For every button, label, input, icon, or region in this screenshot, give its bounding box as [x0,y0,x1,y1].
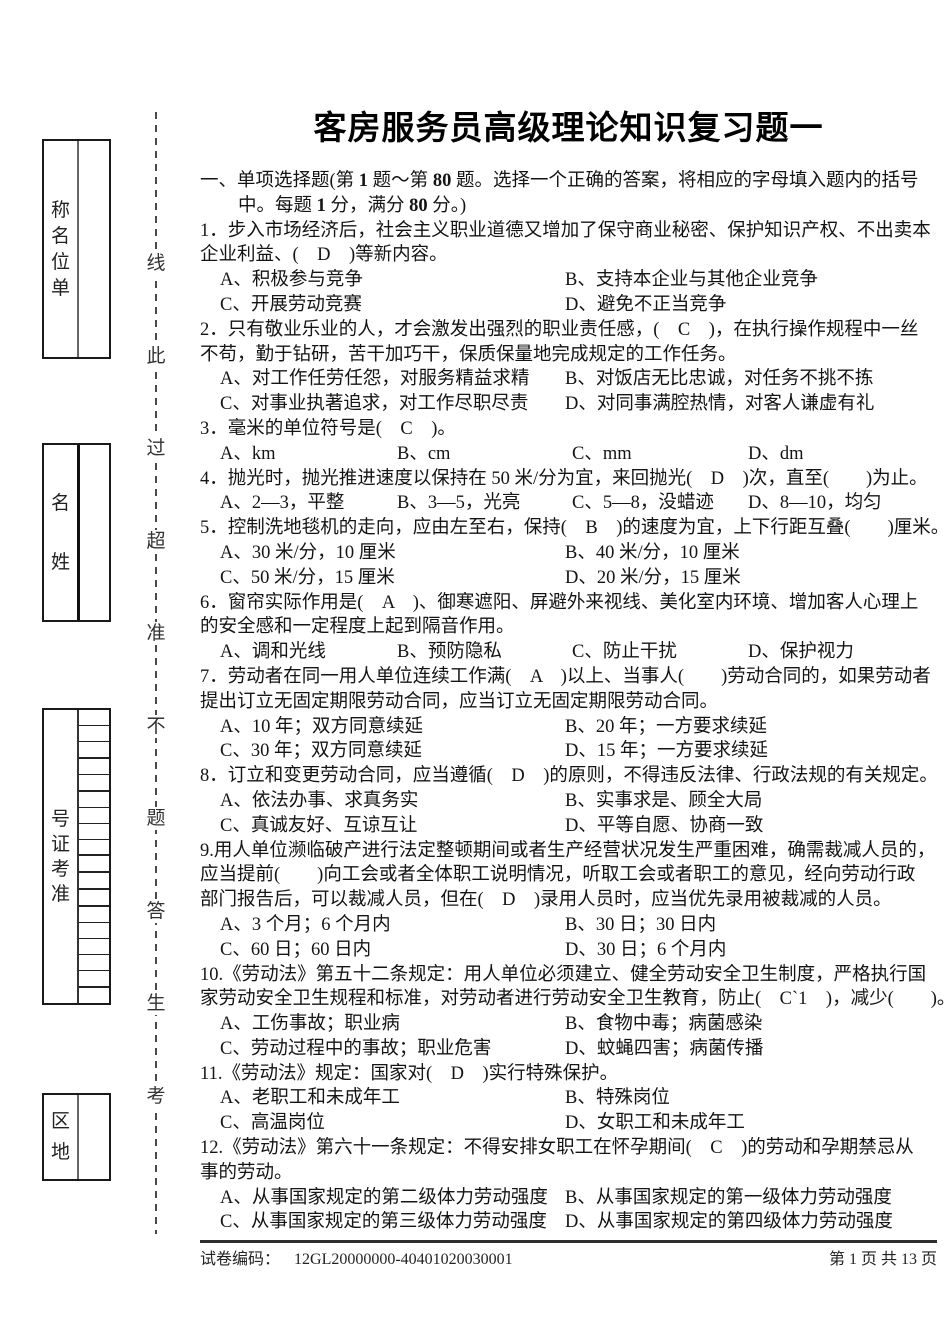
cut-line-char: 准 [146,622,166,645]
option: B、从事国家规定的第一级体力劳动强度 [565,1186,937,1211]
option: B、对饭店无比忠诚，对任务不挑不拣 [565,367,937,392]
option: A、调和光线 [220,640,397,665]
exam-number-cell [79,840,109,857]
option: D、15 年；一方要求续延 [565,739,937,764]
option: C、60 日；60 日内 [220,938,565,963]
option: C、对事业执著追求，对工作尽职尽责 [220,392,565,417]
exam-number-cell [79,824,109,840]
exam-number-cell [79,742,109,759]
option: D、8—10，均匀 [748,491,937,516]
question-stem-line: 4．抛光时，抛光推进速度以保持在 50 米/分为宜，来回抛光( D )次，直至(… [200,467,937,492]
cut-line: 线此过超准不题答生考 [146,112,166,1234]
cut-line-char: 题 [146,807,166,830]
option: B、支持本企业与其他企业竞争 [565,268,937,293]
page-title: 客房服务员高级理论知识复习题一 [200,104,937,152]
district-box: 区地 [42,1093,111,1181]
question: 9.用人单位濒临破产进行法定整顿期间或者生产经营状况发生严重困难，确需裁减人员的… [200,839,937,963]
question-stem-line: 3．毫米的单位符号是( C )。 [200,417,937,442]
paper-code-label: 试卷编码： [200,1251,280,1268]
footer-divider [200,1240,937,1243]
question-stem-line: 5．控制洗地毯机的走向，应由左至右，保持( B )的速度为宜，上下行距互叠( )… [200,516,937,541]
option: D、dm [748,442,937,467]
options-grid: A、依法办事、求真务实B、实事求是、顾全大局C、真诚友好、互谅互让D、平等自愿、… [200,789,937,839]
option: D、30 日；6 个月内 [565,938,937,963]
options-grid: A、从事国家规定的第二级体力劳动强度B、从事国家规定的第一级体力劳动强度C、从事… [200,1186,937,1236]
vertical-label-char: 名 [51,494,70,513]
section-header-line2: 中。每题 1 分，满分 80 分。) [200,194,937,219]
exam-number-cell [79,726,109,742]
vertical-label-char: 地 [51,1143,70,1162]
question-stem-line: 12.《劳动法》第六十一条规定：不得安排女职工在怀孕期间( C )的劳动和孕期禁… [200,1136,937,1161]
option: A、工伤事故；职业病 [220,1012,565,1037]
option: D、避免不正当竞争 [565,293,937,318]
cut-line-char: 线 [146,252,166,275]
question: 4．抛光时，抛光推进速度以保持在 50 米/分为宜，来回抛光( D )次，直至(… [200,467,937,517]
option: C、从事国家规定的第三级体力劳动强度 [220,1210,565,1235]
cut-line-dashes [155,112,157,1234]
question-stem-line: 应当提前( )向工会或者全体职工说明情况，听取工会或者职工的意见，经向劳动行政 [200,863,937,888]
option: A、2—3，平整 [220,491,397,516]
option: C、高温岗位 [220,1111,565,1136]
exam-number-cell [79,759,109,775]
question-stem-line: 8．订立和变更劳动合同，应当遵循( D )的原则，不得违反法律、行政法规的有关规… [200,764,937,789]
option: B、cm [397,442,572,467]
vertical-label-char: 考 [51,860,70,879]
cut-line-char: 此 [146,345,166,368]
question-stem-line: 企业利益、( D )等新内容。 [200,243,937,268]
exam-number-cell [79,988,109,1003]
question-stem-line: 的安全感和一定程度上起到隔音作用。 [200,615,937,640]
question: 12.《劳动法》第六十一条规定：不得安排女职工在怀孕期间( C )的劳动和孕期禁… [200,1136,937,1235]
exam-number-cell [79,955,109,971]
question-stem-line: 事的劳动。 [200,1161,937,1186]
question-stem-line: 不苟，勤于钻研，苦干加巧干，保质保量地完成规定的工作任务。 [200,343,937,368]
vertical-label-char: 称 [51,201,70,220]
cut-line-char: 不 [146,715,166,738]
option: C、30 年；双方同意续延 [220,739,565,764]
vertical-label-char: 区 [51,1112,70,1131]
question-list: 1．步入市场经济后，社会主义职业道德又增加了保守商业秘密、保护知识产权、不出卖本… [200,219,937,1236]
option: D、对同事满腔热情，对客人谦虚有礼 [565,392,937,417]
page-footer: 试卷编码：12GL20000000-40401020030001 第 1 页 共… [200,1248,937,1272]
question: 1．步入市场经济后，社会主义职业道德又增加了保守商业秘密、保护知识产权、不出卖本… [200,219,937,318]
option: D、从事国家规定的第四级体力劳动强度 [565,1210,937,1235]
question: 6．窗帘实际作用是( A )、御寒遮阳、屏避外来视线、美化室内环境、增加客人心理… [200,591,937,665]
option: B、20 年；一方要求续延 [565,715,937,740]
question-stem-line: 11.《劳动法》规定：国家对( D )实行特殊保护。 [200,1062,937,1087]
question-stem-line: 10.《劳动法》第五十二条规定：用人单位必须建立、健全劳动安全卫生制度，严格执行… [200,963,937,988]
exam-number-box: 号证考准 [42,708,111,1005]
option: C、5—8，没蜡迹 [572,491,748,516]
question-stem-line: 7．劳动者在同一用人单位连续工作满( A )以上、当事人( )劳动合同的，如果劳… [200,665,937,690]
option: B、实事求是、顾全大局 [565,789,937,814]
question-stem-line: 6．窗帘实际作用是( A )、御寒遮阳、屏避外来视线、美化室内环境、增加客人心理… [200,591,937,616]
vertical-label-char: 单 [51,279,70,298]
option: B、30 日；30 日内 [565,913,937,938]
question-stem-line: 2．只有敬业乐业的人，才会激发出强烈的职业责任感，( C )，在执行操作规程中一… [200,318,937,343]
question: 8．订立和变更劳动合同，应当遵循( D )的原则，不得违反法律、行政法规的有关规… [200,764,937,838]
option: A、依法办事、求真务实 [220,789,565,814]
option: B、食物中毒；病菌感染 [565,1012,937,1037]
exam-number-grid [77,710,109,1003]
option: D、20 米/分，15 厘米 [565,566,937,591]
question: 7．劳动者在同一用人单位连续工作满( A )以上、当事人( )劳动合同的，如果劳… [200,665,937,764]
options-grid: A、3 个月；6 个月内B、30 日；30 日内C、60 日；60 日内D、30… [200,913,937,963]
option: A、3 个月；6 个月内 [220,913,565,938]
district-field [77,1095,109,1179]
option: D、女职工和未成年工 [565,1111,937,1136]
exam-number-cell [79,808,109,824]
option: A、30 米/分，10 厘米 [220,541,565,566]
option: A、积极参与竞争 [220,268,565,293]
option: C、防止干扰 [572,640,748,665]
option: A、老职工和未成年工 [220,1086,565,1111]
exam-number-cell [79,792,109,808]
option: C、劳动过程中的事故；职业危害 [220,1037,565,1062]
question: 2．只有敬业乐业的人，才会激发出强烈的职业责任感，( C )，在执行操作规程中一… [200,318,937,417]
exam-number-cell [79,890,109,907]
question: 10.《劳动法》第五十二条规定：用人单位必须建立、健全劳动安全卫生制度，严格执行… [200,963,937,1062]
name-field [77,445,109,620]
vertical-label-char: 准 [51,885,70,904]
exam-number-cell [79,775,109,792]
question: 5．控制洗地毯机的走向，应由左至右，保持( B )的速度为宜，上下行距互叠( )… [200,516,937,590]
question-stem-line: 家劳动安全卫生规程和标准，对劳动者进行劳动安全卫生教育，防止( C`1 )，减少… [200,987,937,1012]
option: B、40 米/分，10 厘米 [565,541,937,566]
options-grid: A、kmB、cmC、mmD、dm [200,442,937,467]
option: D、保护视力 [748,640,937,665]
page-indicator: 第 1 页 共 13 页 [829,1248,937,1272]
options-grid: A、调和光线B、预防隐私C、防止干扰D、保护视力 [200,640,937,665]
option: B、预防隐私 [397,640,572,665]
options-grid: A、老职工和未成年工B、特殊岗位C、高温岗位D、女职工和未成年工 [200,1086,937,1136]
exam-number-cell [79,856,109,873]
unit-name-field [77,141,109,357]
option: D、平等自愿、协商一致 [565,814,937,839]
district-label: 区地 [44,1095,77,1179]
cut-line-char: 超 [146,530,166,553]
question: 11.《劳动法》规定：国家对( D )实行特殊保护。A、老职工和未成年工B、特殊… [200,1062,937,1136]
name-box: 名姓 [42,443,111,622]
exam-paper: 客房服务员高级理论知识复习题一 一、单项选择题(第 1 题～第 80 题。选择一… [200,104,937,1235]
option: A、对工作任劳任怨，对服务精益求精 [220,367,565,392]
exam-number-label: 号证考准 [44,710,77,1003]
option: C、开展劳动竞赛 [220,293,565,318]
options-grid: A、30 米/分，10 厘米B、40 米/分，10 厘米C、50 米/分，15 … [200,541,937,591]
unit-name-label: 称名位单 [44,141,77,357]
option: B、3—5，光亮 [397,491,572,516]
options-grid: A、积极参与竞争B、支持本企业与其他企业竞争C、开展劳动竞赛D、避免不正当竞争 [200,268,937,318]
options-grid: A、10 年；双方同意续延B、20 年；一方要求续延C、30 年；双方同意续延D… [200,715,937,765]
exam-number-cell [79,923,109,939]
cut-line-char: 答 [146,900,166,923]
question-stem-line: 1．步入市场经济后，社会主义职业道德又增加了保守商业秘密、保护知识产权、不出卖本 [200,219,937,244]
cut-line-char: 考 [146,1085,166,1108]
exam-number-cell [79,907,109,923]
question-stem-line: 9.用人单位濒临破产进行法定整顿期间或者生产经营状况发生严重困难，确需裁减人员的… [200,839,937,864]
section-header-line1: 一、单项选择题(第 1 题～第 80 题。选择一个正确的答案，将相应的字母填入题… [200,169,937,194]
exam-number-cell [79,971,109,988]
option: A、从事国家规定的第二级体力劳动强度 [220,1186,565,1211]
options-grid: A、对工作任劳任怨，对服务精益求精B、对饭店无比忠诚，对任务不挑不拣C、对事业执… [200,367,937,417]
option: C、50 米/分，15 厘米 [220,566,565,591]
paper-code-value: 12GL20000000-40401020030001 [294,1251,513,1268]
vertical-label-char: 证 [51,835,70,854]
exam-number-cell [79,873,109,890]
option: D、蚊蝇四害；病菌传播 [565,1037,937,1062]
exam-number-cell [79,939,109,955]
exam-number-cell [79,710,109,726]
option: C、mm [572,442,748,467]
question-stem-line: 提出订立无固定期限劳动合同，应当订立无固定期限劳动合同。 [200,690,937,715]
question: 3．毫米的单位符号是( C )。A、kmB、cmC、mmD、dm [200,417,937,467]
options-grid: A、2—3，平整B、3—5，光亮C、5—8，没蜡迹D、8—10，均匀 [200,491,937,516]
name-label: 名姓 [44,445,77,620]
option: C、真诚友好、互谅互让 [220,814,565,839]
cut-line-char: 过 [146,437,166,460]
option: B、特殊岗位 [565,1086,937,1111]
option: A、10 年；双方同意续延 [220,715,565,740]
options-grid: A、工伤事故；职业病B、食物中毒；病菌感染C、劳动过程中的事故；职业危害D、蚊蝇… [200,1012,937,1062]
question-stem-line: 部门报告后，可以裁减人员，但在( D )录用人员时，应当优先录用被裁减的人员。 [200,888,937,913]
vertical-label-char: 号 [51,810,70,829]
paper-code: 试卷编码：12GL20000000-40401020030001 [200,1248,513,1272]
vertical-label-char: 姓 [51,553,70,572]
option: A、km [220,442,397,467]
vertical-label-char: 名 [51,227,70,246]
cut-line-char: 生 [146,992,166,1015]
vertical-label-char: 位 [51,253,70,272]
unit-name-box: 称名位单 [42,139,111,359]
